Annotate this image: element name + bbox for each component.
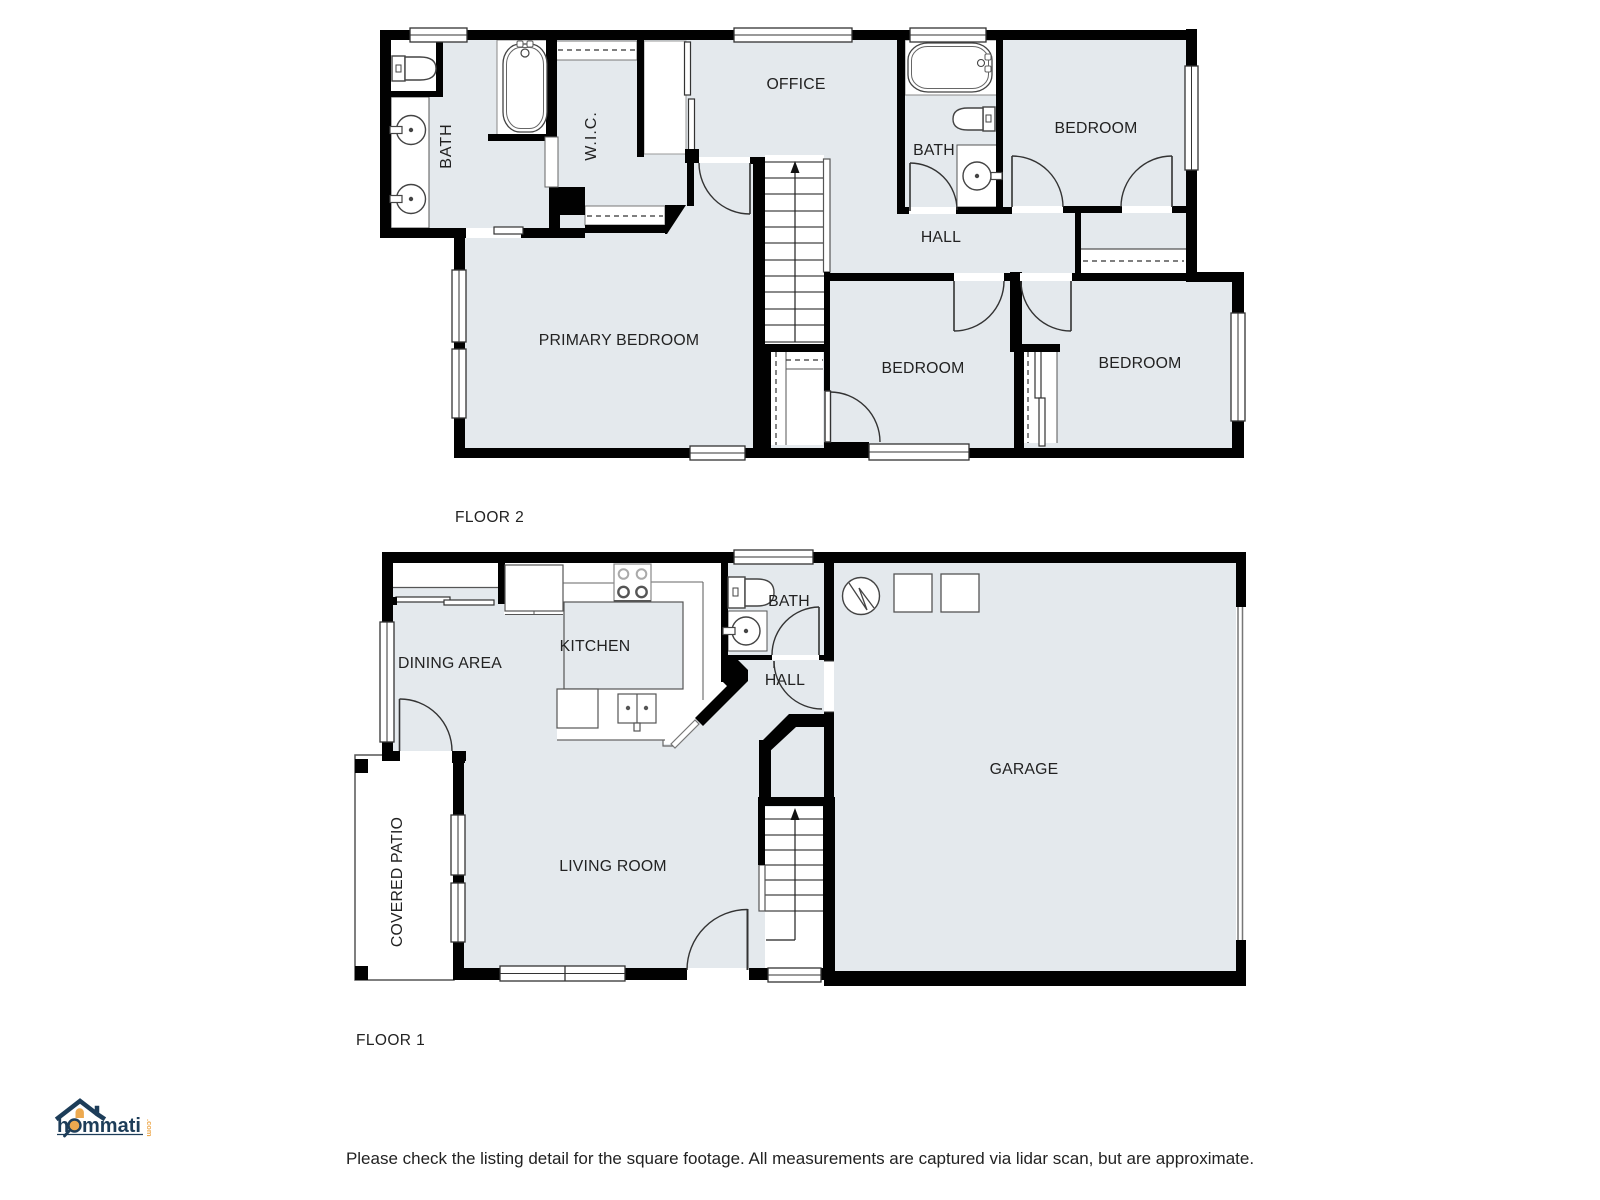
svg-text:BEDROOM: BEDROOM	[1054, 120, 1137, 137]
svg-text:OFFICE: OFFICE	[766, 76, 825, 93]
svg-text:.com: .com	[145, 1119, 154, 1137]
svg-text:PRIMARY BEDROOM: PRIMARY BEDROOM	[539, 332, 699, 349]
svg-text:DINING AREA: DINING AREA	[398, 655, 502, 672]
svg-text:LIVING ROOM: LIVING ROOM	[559, 858, 667, 875]
svg-text:HALL: HALL	[765, 672, 805, 689]
svg-text:BATH: BATH	[913, 142, 955, 159]
svg-text:BEDROOM: BEDROOM	[881, 360, 964, 377]
svg-text:W.I.C.: W.I.C.	[583, 111, 600, 161]
svg-text:HALL: HALL	[921, 229, 961, 246]
svg-text:GARAGE: GARAGE	[990, 761, 1059, 778]
svg-text:BATH: BATH	[768, 593, 810, 610]
svg-text:COVERED PATIO: COVERED PATIO	[389, 817, 406, 947]
svg-text:BATH: BATH	[438, 123, 455, 168]
svg-text:mmati: mmati	[82, 1115, 141, 1137]
svg-text:Please check the listing detai: Please check the listing detail for the …	[346, 1149, 1254, 1168]
svg-text:KITCHEN: KITCHEN	[560, 638, 631, 655]
svg-text:FLOOR 1: FLOOR 1	[356, 1032, 425, 1049]
svg-text:BEDROOM: BEDROOM	[1098, 355, 1181, 372]
svg-text:FLOOR 2: FLOOR 2	[455, 509, 524, 526]
